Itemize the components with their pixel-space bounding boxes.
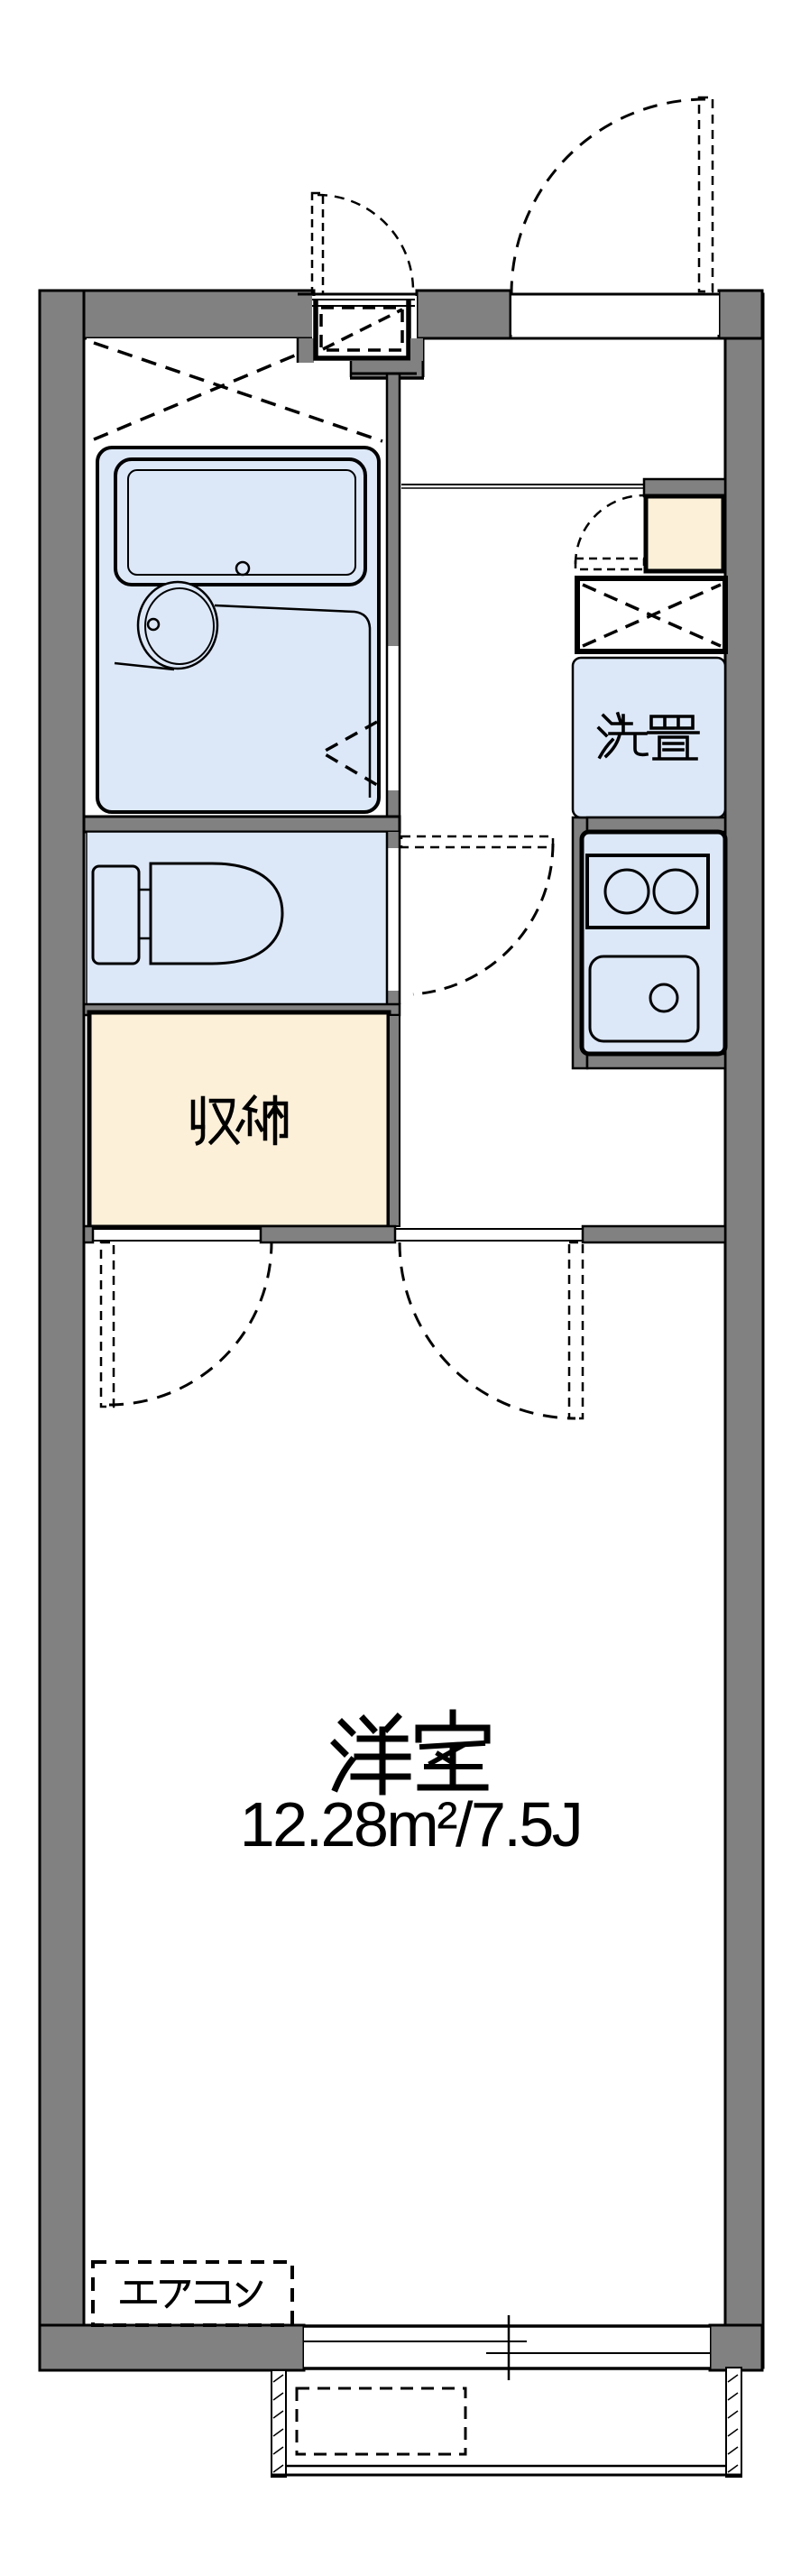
svg-text:12.28m²/7.5J: 12.28m²/7.5J: [240, 1789, 582, 1860]
